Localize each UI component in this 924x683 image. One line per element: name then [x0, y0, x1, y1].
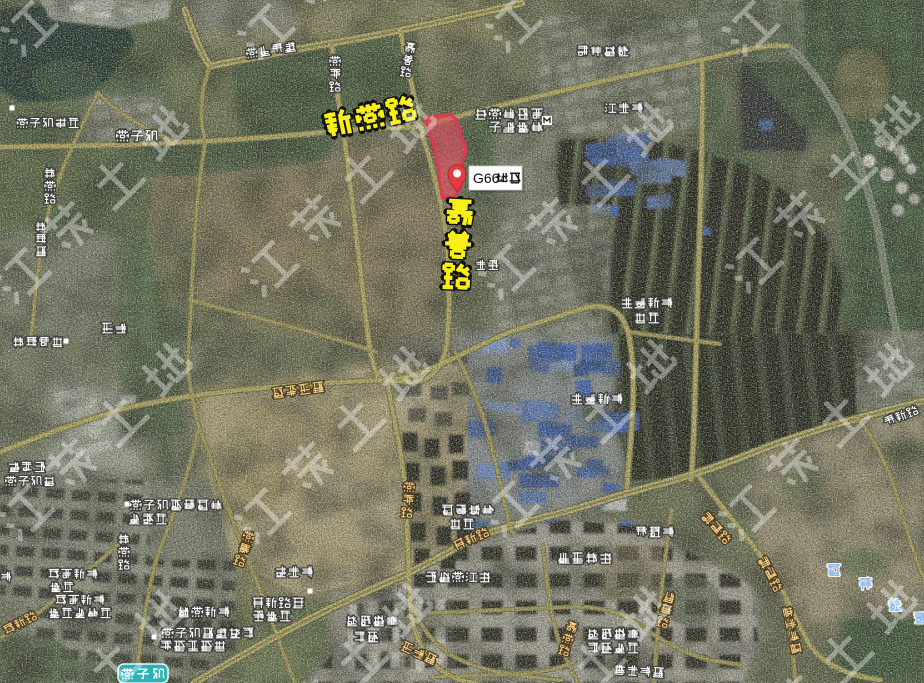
- svg-text:G66: G66: [473, 170, 500, 186]
